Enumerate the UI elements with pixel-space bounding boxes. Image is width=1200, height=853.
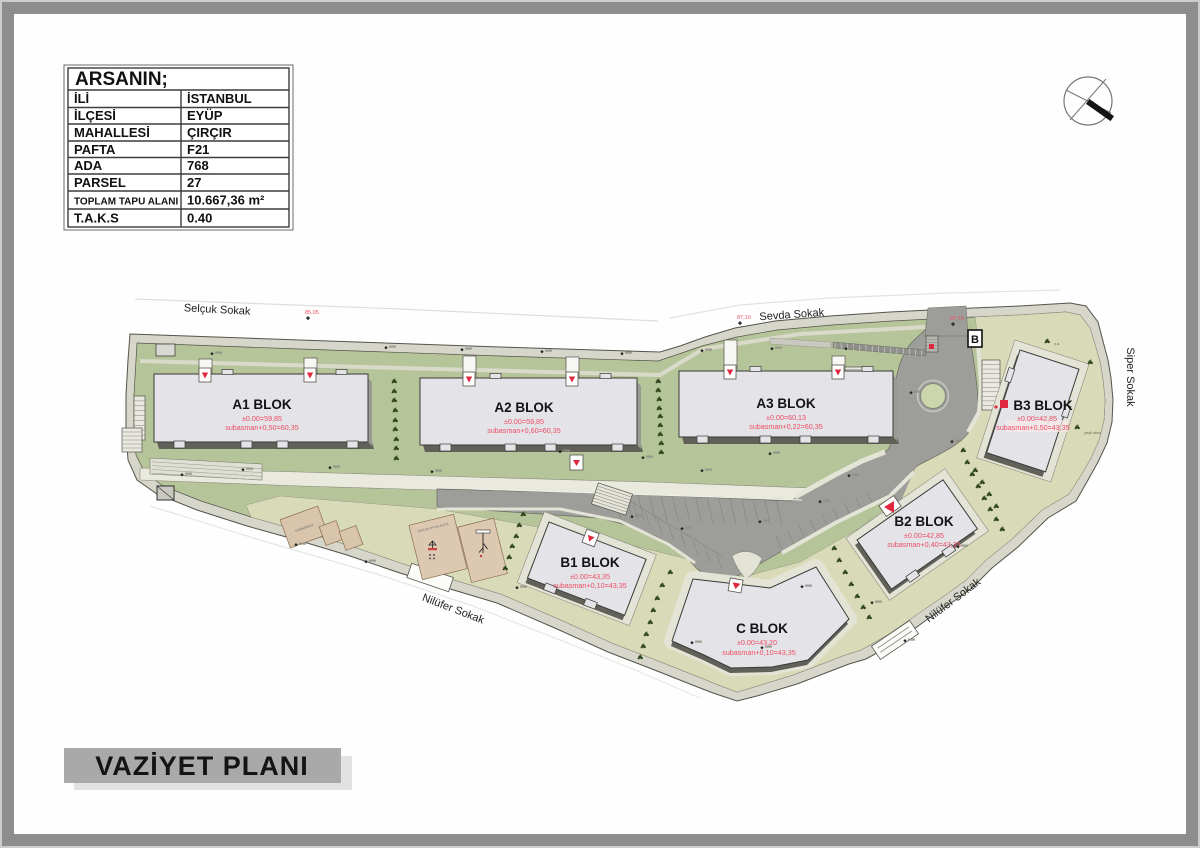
svg-text:PARSEL: PARSEL [74,175,126,190]
svg-text:Siper Sokak: Siper Sokak [1124,347,1136,407]
svg-text:subasman+0,10=43,35: subasman+0,10=43,35 [722,648,796,657]
svg-text:T.A.K.S: T.A.K.S [74,211,119,226]
svg-text:10.667,36 m²: 10.667,36 m² [187,193,265,208]
svg-text:PAFTA: PAFTA [74,142,116,157]
svg-text:±0.00=59,85: ±0.00=59,85 [504,417,544,426]
svg-text:MAHALLESİ: MAHALLESİ [74,125,150,140]
svg-text:A2 BLOK: A2 BLOK [494,400,554,415]
svg-text:87,75: 87,75 [950,316,964,322]
svg-text:subasman+0,40=43,35: subasman+0,40=43,35 [887,540,961,549]
svg-text:B2 BLOK: B2 BLOK [894,514,954,529]
svg-text:ARSANIN;: ARSANIN; [75,69,168,90]
svg-text:±0.00=43,35: ±0.00=43,35 [570,572,610,581]
svg-text:±0.00=59,85: ±0.00=59,85 [242,414,282,423]
svg-text:0.40: 0.40 [187,211,212,226]
svg-text:TOPLAM TAPU ALANI: TOPLAM TAPU ALANI [74,197,178,208]
svg-text:B3 BLOK: B3 BLOK [1013,398,1073,413]
svg-text:subasman+0,10=43,35: subasman+0,10=43,35 [553,581,627,590]
svg-text:768: 768 [187,158,209,173]
svg-text:ÇIRÇIR: ÇIRÇIR [187,125,232,140]
svg-text:±0.00=42,85: ±0.00=42,85 [904,531,944,540]
svg-text:y.a.: y.a. [1054,341,1060,346]
svg-text:85,05: 85,05 [305,310,319,316]
svg-text:B: B [971,334,979,346]
svg-text:±0.00=42,85: ±0.00=42,85 [1017,414,1057,423]
svg-text:27: 27 [187,175,201,190]
svg-text:F21: F21 [187,142,209,157]
svg-text:A3 BLOK: A3 BLOK [756,396,816,411]
svg-text:±0.00=60,13: ±0.00=60,13 [766,413,806,422]
svg-text:yeşil alan: yeşil alan [1084,430,1101,435]
svg-text:EYÜP: EYÜP [187,108,223,123]
svg-text:A1 BLOK: A1 BLOK [232,397,292,412]
svg-text:İSTANBUL: İSTANBUL [187,91,252,106]
svg-text:subasman+0,60=60,35: subasman+0,60=60,35 [487,426,561,435]
svg-text:subasman+0,50=43,35: subasman+0,50=43,35 [996,423,1070,432]
svg-text:İLİ: İLİ [74,91,89,106]
svg-text:87,10: 87,10 [737,315,751,321]
svg-text:B1 BLOK: B1 BLOK [560,555,620,570]
svg-text:İLÇESİ: İLÇESİ [74,108,116,123]
svg-text:C BLOK: C BLOK [736,621,788,636]
svg-text:ADA: ADA [74,158,103,173]
svg-text:VAZİYET PLANI: VAZİYET PLANI [95,751,309,781]
svg-text:subasman+0,22=60,35: subasman+0,22=60,35 [749,422,823,431]
svg-text:subasman+0,50=60,35: subasman+0,50=60,35 [225,423,299,432]
